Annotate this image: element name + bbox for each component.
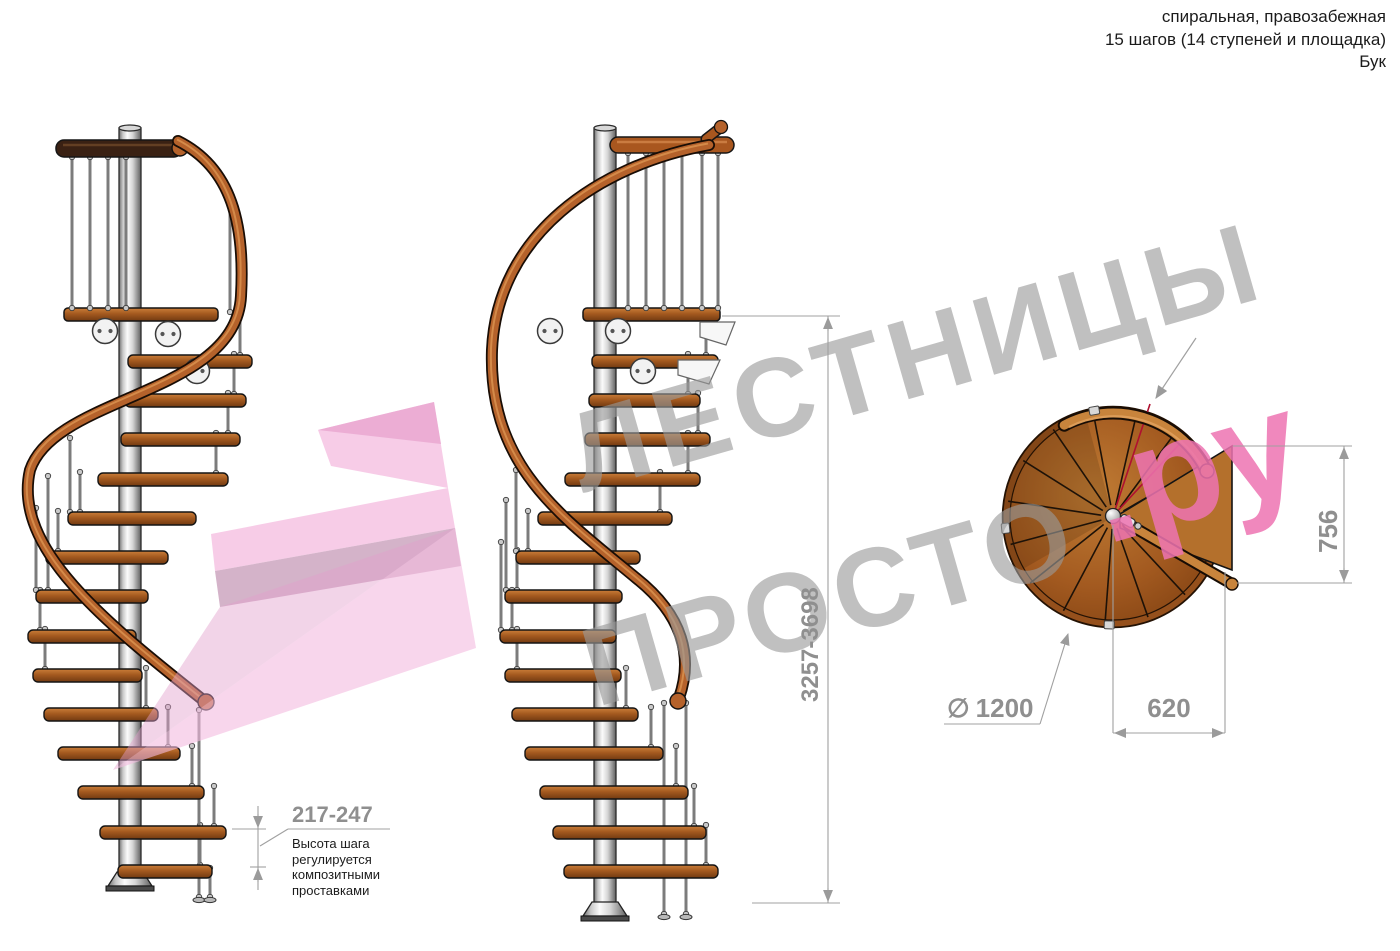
- stair-step: [525, 747, 663, 760]
- baluster-knob: [211, 783, 216, 788]
- stair-step: [78, 786, 204, 799]
- watermark-word-bottom: ПРОСТО: [569, 470, 1091, 730]
- platform-fence-rail: [56, 140, 182, 157]
- step-count-line: 15 шагов (14 ступеней и площадка): [1105, 29, 1386, 52]
- title-block: спиральная, правозабежная 15 шагов (14 с…: [1105, 6, 1386, 74]
- diameter-symbol: ∅: [947, 693, 970, 723]
- watermark-suffix: .ру: [1070, 358, 1319, 575]
- baluster-foot: [658, 914, 670, 919]
- stair-step: [121, 433, 240, 446]
- disc-bolt: [542, 329, 546, 333]
- staircase-drawing-canvas: ЛЕСТНИЦЫ ПРОСТО .ру: [0, 0, 1400, 951]
- baluster-knob: [715, 305, 720, 310]
- disc-bolt: [621, 329, 625, 333]
- baluster-knob: [67, 435, 72, 440]
- connector-disc: [606, 319, 631, 344]
- platform-board: [583, 308, 720, 321]
- baluster-knob: [55, 508, 60, 513]
- pole-base-plate: [106, 886, 154, 891]
- stair-step: [100, 826, 226, 839]
- leader-line: [260, 829, 288, 846]
- stair-step: [68, 512, 196, 525]
- baluster-knob: [661, 305, 666, 310]
- diameter-value: 1200: [976, 693, 1034, 723]
- baluster-knob: [189, 743, 194, 748]
- baluster-knob: [87, 305, 92, 310]
- handrail-end-cap: [715, 121, 728, 134]
- landing-depth-dimension: 756: [1313, 510, 1343, 553]
- pole-cap: [119, 125, 141, 131]
- step-rise-dimension: 217-247: [292, 802, 373, 827]
- baluster-knob: [625, 305, 630, 310]
- disc-bolt: [553, 329, 557, 333]
- baluster-knob: [123, 305, 128, 310]
- center-elevation-view: [491, 121, 735, 922]
- baluster-knob: [525, 508, 530, 513]
- stair-step: [44, 708, 158, 721]
- pole-base-flare: [583, 902, 627, 916]
- baluster-knob: [105, 305, 110, 310]
- disc-bolt: [171, 332, 175, 336]
- baluster-knob: [673, 743, 678, 748]
- step-rise-note: Высота шага регулируется композитными пр…: [292, 836, 442, 898]
- leader-line: [1040, 634, 1068, 724]
- disc-bolt: [108, 329, 112, 333]
- connector-disc: [538, 319, 563, 344]
- baluster-knob: [45, 473, 50, 478]
- step-width-dimension: 620: [1147, 693, 1190, 723]
- baluster-knob: [69, 305, 74, 310]
- stair-step: [98, 473, 228, 486]
- baluster-foot: [193, 897, 205, 902]
- baluster-knob: [77, 469, 82, 474]
- stair-step: [540, 786, 688, 799]
- disc-bolt: [200, 369, 204, 373]
- pole-cap: [594, 125, 616, 131]
- stair-step: [46, 551, 168, 564]
- watermark: ЛЕСТНИЦЫ ПРОСТО .ру: [511, 198, 1336, 730]
- baluster-knob: [643, 305, 648, 310]
- baluster-knob: [699, 305, 704, 310]
- baluster-knob: [679, 305, 684, 310]
- stair-step: [118, 865, 212, 878]
- left-elevation-view: [27, 125, 252, 903]
- pole-base-plate: [581, 916, 629, 921]
- material-line: Бук: [1105, 51, 1386, 74]
- disc-bolt: [160, 332, 164, 336]
- stair-step: [564, 865, 718, 878]
- disc-bolt: [97, 329, 101, 333]
- stair-type-line: спиральная, правозабежная: [1105, 6, 1386, 29]
- baluster-foot: [680, 914, 692, 919]
- platform-board: [64, 308, 218, 321]
- stair-step: [553, 826, 706, 839]
- connector-disc: [93, 319, 118, 344]
- arrow-watermark: [113, 402, 476, 770]
- baluster-knob: [691, 783, 696, 788]
- connector-disc: [156, 322, 181, 347]
- disc-bolt: [610, 329, 614, 333]
- stair-step: [33, 669, 142, 682]
- total-height-dimension: 3257-3698: [797, 587, 824, 702]
- baluster-knob: [143, 665, 148, 670]
- baluster-knob: [498, 539, 503, 544]
- diameter-dimension: ∅1200: [947, 693, 1034, 723]
- central-pole: [119, 128, 141, 886]
- baluster-knob: [503, 497, 508, 502]
- technical-drawing-page: ЛЕСТНИЦЫ ПРОСТО .ру: [0, 0, 1400, 951]
- baluster-foot: [204, 897, 216, 902]
- plan-landing-rail-cap: [1226, 578, 1238, 590]
